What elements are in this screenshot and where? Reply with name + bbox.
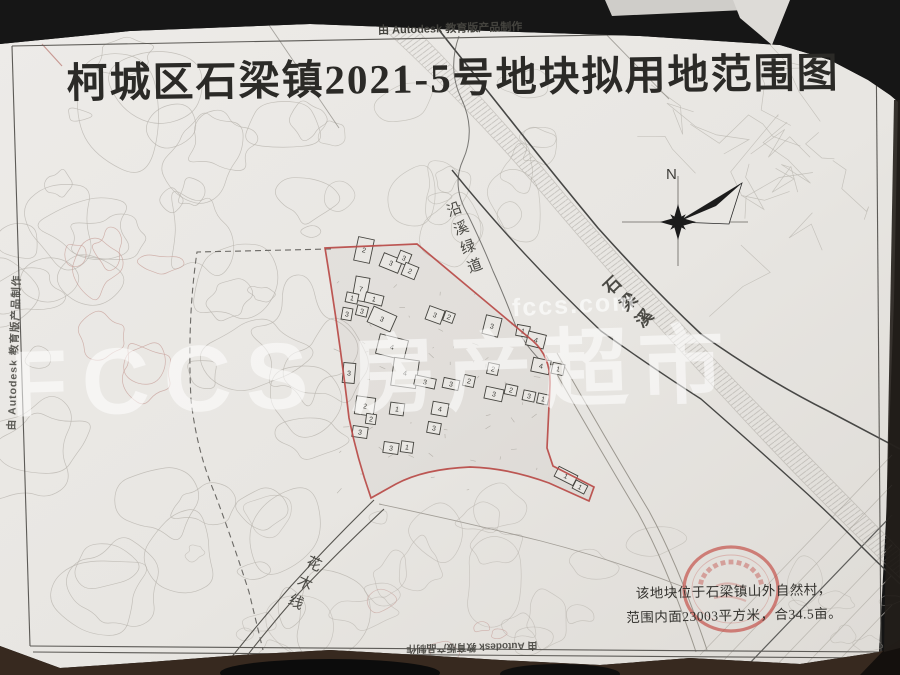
building: 1 [389, 402, 405, 416]
building: 1 [345, 292, 359, 304]
building: 3 [522, 390, 536, 402]
building: 3 [383, 442, 399, 455]
building: 2 [504, 384, 518, 396]
building: 3 [352, 426, 368, 439]
building: 3 [355, 305, 368, 317]
plot-description: 该地块位于石梁镇山外自然村， 范围内面23003平方米，合34.5亩。 [604, 577, 865, 631]
building: 3 [427, 421, 442, 434]
seal-character-mark [729, 560, 734, 565]
building: 2 [354, 396, 375, 416]
building: 1 [400, 441, 413, 454]
building: 2 [462, 374, 475, 387]
building: 4 [431, 401, 449, 417]
building: 1 [551, 362, 565, 375]
building: 1 [537, 393, 550, 405]
map-title: 柯城区石梁镇2021-5号地块拟用地范围图 [58, 38, 849, 109]
compass-north-label: N [666, 166, 677, 183]
building: 3 [341, 307, 353, 321]
building: 2 [365, 413, 376, 424]
building-number: 3 [347, 370, 352, 377]
building: 2 [486, 362, 499, 375]
photographed-map-page: 23327113333231443433223241312214333111 [0, 0, 900, 675]
